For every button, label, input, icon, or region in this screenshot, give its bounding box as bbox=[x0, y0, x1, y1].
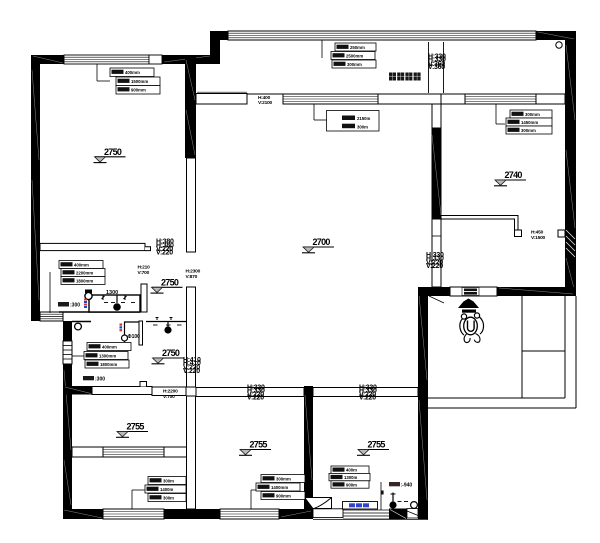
svg-text:1400m: 1400m bbox=[160, 487, 174, 492]
svg-text:V:220: V:220 bbox=[359, 394, 376, 401]
svg-text:400m: 400m bbox=[346, 468, 357, 473]
svg-text:1400mm: 1400mm bbox=[271, 485, 288, 490]
svg-text:V:700: V:700 bbox=[138, 270, 150, 276]
svg-text:2755: 2755 bbox=[368, 440, 386, 450]
svg-text:900m: 900m bbox=[346, 483, 357, 488]
svg-text:400mm: 400mm bbox=[102, 344, 117, 349]
svg-text:900mm: 900mm bbox=[276, 493, 291, 498]
svg-text:Φ100: Φ100 bbox=[128, 334, 141, 340]
svg-text:2750: 2750 bbox=[104, 147, 122, 157]
svg-text:2755: 2755 bbox=[250, 440, 268, 450]
svg-text:1300mm: 1300mm bbox=[99, 353, 116, 358]
svg-text:300m: 300m bbox=[163, 495, 174, 500]
svg-text:H:450: H:450 bbox=[531, 230, 544, 236]
svg-text:V:220: V:220 bbox=[183, 368, 200, 375]
svg-text::-940: :-940 bbox=[401, 482, 413, 488]
svg-text:300m: 300m bbox=[357, 124, 368, 129]
svg-text:2750: 2750 bbox=[162, 348, 180, 358]
svg-text:V:700: V:700 bbox=[163, 394, 175, 400]
svg-text:1500mm: 1500mm bbox=[131, 79, 148, 84]
svg-text:2740: 2740 bbox=[505, 170, 523, 180]
svg-text:300mm: 300mm bbox=[276, 476, 291, 481]
svg-text:1300: 1300 bbox=[106, 290, 118, 296]
svg-text:2150m: 2150m bbox=[357, 116, 371, 121]
svg-text:1800mm: 1800mm bbox=[100, 362, 117, 367]
svg-text:H:210: H:210 bbox=[138, 265, 151, 271]
svg-text:V:360: V:360 bbox=[428, 64, 445, 71]
svg-text::300: :300 bbox=[95, 376, 105, 382]
svg-text:H:2200: H:2200 bbox=[163, 389, 178, 395]
svg-text:V:220: V:220 bbox=[247, 394, 264, 401]
svg-text:V:220: V:220 bbox=[426, 263, 443, 270]
svg-text:2755: 2755 bbox=[127, 422, 145, 432]
svg-text:V:220: V:220 bbox=[156, 250, 173, 257]
svg-text::300: :300 bbox=[70, 303, 80, 309]
svg-text:900mm: 900mm bbox=[131, 87, 146, 92]
svg-text:V:870: V:870 bbox=[186, 274, 198, 280]
svg-text:2700: 2700 bbox=[313, 237, 331, 247]
svg-text:2500mm: 2500mm bbox=[346, 53, 363, 58]
svg-text:400mm: 400mm bbox=[74, 262, 89, 267]
svg-text:1300m: 1300m bbox=[344, 475, 358, 480]
svg-text:V:2100: V:2100 bbox=[258, 100, 273, 106]
svg-text:250mm: 250mm bbox=[350, 45, 365, 50]
svg-text:400mm: 400mm bbox=[125, 70, 140, 75]
svg-text:2750: 2750 bbox=[161, 277, 179, 287]
svg-text:300m: 300m bbox=[163, 478, 174, 483]
svg-text:300mm: 300mm bbox=[521, 128, 536, 133]
svg-text:H:2300: H:2300 bbox=[186, 269, 201, 275]
svg-text:300mm: 300mm bbox=[347, 62, 362, 67]
svg-text:1800mm: 1800mm bbox=[76, 278, 93, 283]
svg-text:V:1500: V:1500 bbox=[531, 235, 546, 241]
svg-text:H:400: H:400 bbox=[258, 95, 271, 101]
svg-text:1450mm: 1450mm bbox=[521, 120, 538, 125]
svg-text:300mm: 300mm bbox=[525, 112, 540, 117]
svg-text:2200mm: 2200mm bbox=[76, 270, 93, 275]
